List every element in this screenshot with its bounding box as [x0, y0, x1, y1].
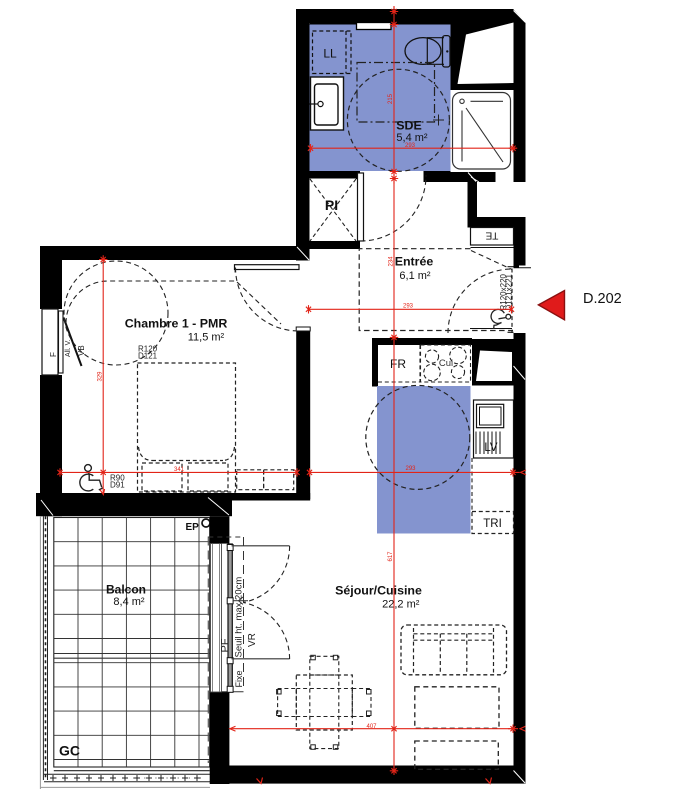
svg-text:TE: TE	[485, 230, 498, 241]
svg-text:329: 329	[98, 371, 104, 382]
svg-text:6,1 m²: 6,1 m²	[399, 270, 431, 282]
svg-text:407: 407	[366, 724, 377, 730]
svg-text:LV: LV	[484, 442, 498, 454]
svg-text:11,5 m²: 11,5 m²	[188, 332, 225, 344]
svg-text:LL: LL	[323, 47, 337, 61]
svg-text:D121x221: D121x221	[505, 273, 514, 310]
svg-text:D121: D121	[138, 352, 158, 361]
svg-text:TRI: TRI	[483, 518, 502, 530]
svg-text:VR: VR	[247, 633, 258, 647]
svg-text:PI: PI	[325, 197, 338, 213]
svg-text:341: 341	[174, 467, 185, 473]
svg-text:F: F	[49, 352, 58, 357]
svg-text:GC: GC	[59, 743, 80, 759]
svg-text:Seuil ht. max 20cm: Seuil ht. max 20cm	[234, 577, 245, 658]
svg-text:Fixe: Fixe	[234, 670, 244, 687]
svg-text:Entrée: Entrée	[395, 255, 434, 269]
svg-text:D.202: D.202	[583, 291, 622, 307]
svg-text:617: 617	[388, 551, 394, 562]
svg-text:234: 234	[389, 256, 395, 267]
svg-text:293: 293	[405, 143, 416, 149]
svg-text:SDE: SDE	[396, 119, 421, 133]
svg-text:215: 215	[388, 93, 394, 104]
svg-text:All. V.: All. V.	[65, 339, 72, 357]
svg-text:8,4 m²: 8,4 m²	[113, 596, 145, 608]
svg-text:EP: EP	[186, 522, 200, 533]
svg-text:293: 293	[405, 466, 416, 472]
svg-text:FR: FR	[390, 357, 406, 371]
svg-text:Cui: Cui	[439, 358, 453, 369]
svg-text:PF: PF	[220, 638, 232, 652]
svg-text:Séjour/Cuisine: Séjour/Cuisine	[335, 583, 422, 597]
svg-text:D91: D91	[110, 481, 125, 490]
svg-text:Chambre 1 - PMR: Chambre 1 - PMR	[125, 317, 228, 331]
svg-text:Balcon: Balcon	[106, 582, 146, 596]
svg-text:22,2 m²: 22,2 m²	[382, 598, 420, 610]
svg-text:293: 293	[403, 303, 414, 309]
